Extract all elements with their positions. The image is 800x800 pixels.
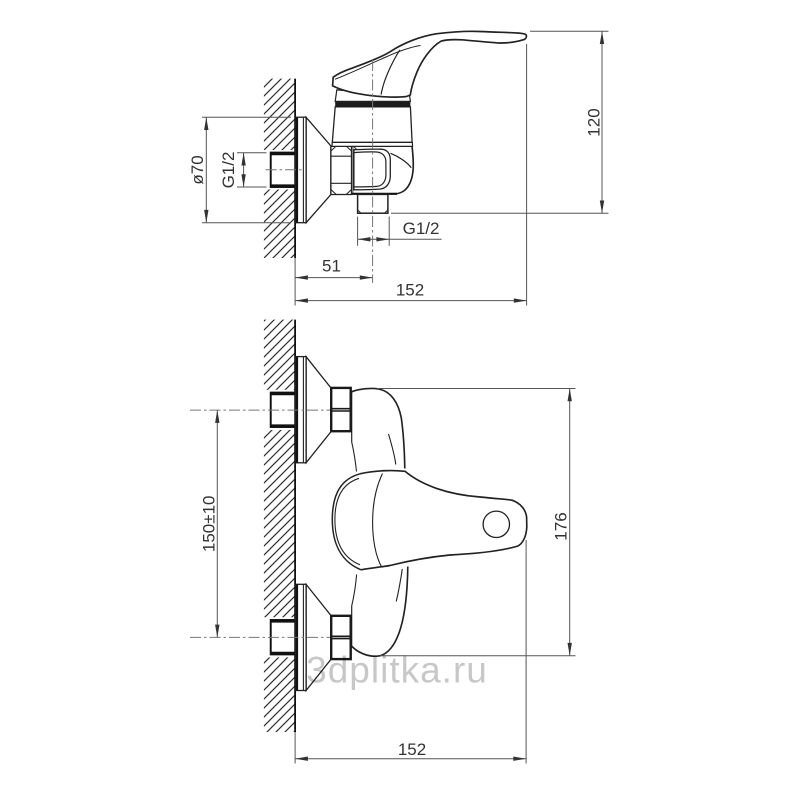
svg-text:152: 152 [398, 740, 426, 759]
svg-text:150±10: 150±10 [200, 495, 219, 552]
svg-text:152: 152 [396, 281, 424, 300]
svg-text:G1/2: G1/2 [219, 152, 238, 189]
svg-text:51: 51 [322, 257, 341, 276]
svg-text:120: 120 [585, 108, 604, 136]
svg-text:176: 176 [552, 512, 571, 540]
svg-text:ø70: ø70 [188, 155, 207, 184]
svg-text:3dplitka.ru: 3dplitka.ru [306, 650, 488, 691]
svg-text:G1/2: G1/2 [403, 219, 440, 238]
